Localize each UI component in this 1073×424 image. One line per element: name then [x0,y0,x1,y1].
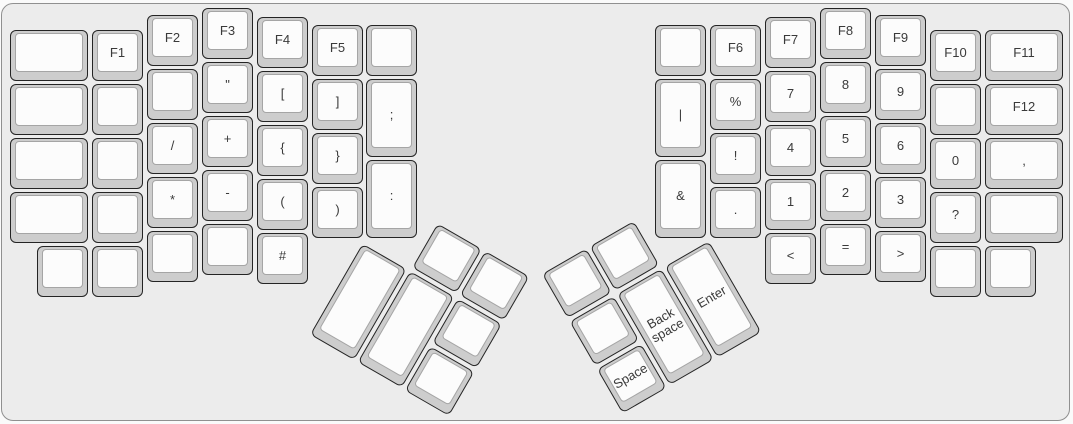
key-seven[interactable]: 7 [765,71,816,122]
keycap-label [97,141,138,180]
keycap-label [595,226,650,280]
keycap-label: F10 [935,33,976,72]
keycap-label: F2 [152,18,193,57]
keycap-label [97,87,138,126]
keycap-label [207,227,248,266]
keycap-label: < [770,236,811,275]
keycap-label [15,87,83,126]
keycap-label: | [660,82,701,148]
keycap-label: F8 [825,11,866,50]
keycap-label: 6 [880,126,921,165]
key-three[interactable]: 3 [875,177,926,228]
key-blank[interactable] [10,84,88,135]
key-right-brace[interactable]: } [312,133,363,184]
key-plus[interactable]: + [202,116,253,167]
keycap-label: = [825,227,866,266]
key-blank[interactable] [10,30,88,81]
key-f5[interactable]: F5 [312,25,363,76]
key-f8[interactable]: F8 [820,8,871,59]
keycap-label: 9 [880,72,921,111]
keycap-label [97,195,138,234]
keycap-label [935,249,976,288]
key-slash[interactable]: / [147,123,198,174]
keycap-label: F9 [880,18,921,57]
keycap-label: 1 [770,182,811,221]
key-four[interactable]: 4 [765,125,816,176]
key-left-bracket[interactable]: [ [257,71,308,122]
keycap-label: F4 [262,20,303,59]
key-blank[interactable] [92,138,143,189]
key-f1[interactable]: F1 [92,30,143,81]
keycap-label: ) [317,190,358,229]
keycap-label [660,28,701,67]
keycap-label: 8 [825,65,866,104]
keycap-label [97,249,138,288]
key-question[interactable]: ? [930,192,981,243]
key-blank[interactable] [930,246,981,297]
keycap-label: F6 [715,28,756,67]
keycap-label [152,234,193,273]
keycap-label: 7 [770,74,811,113]
key-f7[interactable]: F7 [765,17,816,68]
keycap-label [990,249,1031,288]
key-blank[interactable] [202,224,253,275]
key-f3[interactable]: F3 [202,8,253,59]
key-left-paren[interactable]: ( [257,179,308,230]
key-semicolon[interactable]: ; [366,79,417,157]
keycap-label [469,256,524,310]
keycap-label: + [207,119,248,158]
keycap-label: ? [935,195,976,234]
keycap-label [15,141,83,180]
key-greater-than[interactable]: > [875,231,926,282]
key-blank[interactable] [92,246,143,297]
key-blank[interactable] [147,231,198,282]
key-blank[interactable] [985,246,1036,297]
key-nine[interactable]: 9 [875,69,926,120]
keycap-label [15,33,83,72]
keycap-label: # [262,236,303,275]
key-blank[interactable] [92,84,143,135]
key-blank[interactable] [10,192,88,243]
keycap-label: 0 [935,141,976,180]
keycap-label: " [207,65,248,104]
key-six[interactable]: 6 [875,123,926,174]
key-equals[interactable]: = [820,224,871,275]
key-right-paren[interactable]: ) [312,187,363,238]
keycap-label: - [207,173,248,212]
keycap-label: } [317,136,358,175]
keycap-label [152,72,193,111]
key-left-brace[interactable]: { [257,125,308,176]
keycap-label [548,254,603,308]
keycap-label: ] [317,82,358,121]
key-ampersand[interactable]: & [655,160,706,238]
key-blank[interactable] [985,192,1063,243]
key-f6[interactable]: F6 [710,25,761,76]
keycap-label: > [880,234,921,273]
key-pipe[interactable]: | [655,79,706,157]
keycap-label: Space [603,349,658,403]
key-f12[interactable]: F12 [985,84,1063,135]
keycap-label: : [371,163,412,229]
keyboard-layout-canvas: F1F2/*F3"+-F4[{(#F5]});:|&F6%!.F7741<F88… [0,0,1073,424]
key-right-bracket[interactable]: ] [312,79,363,130]
keycap-label [935,87,976,126]
key-asterisk[interactable]: * [147,177,198,228]
keycap-label: F11 [990,33,1058,72]
key-f9[interactable]: F9 [875,15,926,66]
keycap-label: [ [262,74,303,113]
keycap-label: % [715,82,756,121]
keycap-label: { [262,128,303,167]
keycap-label [990,195,1058,234]
keycap-label: ( [262,182,303,221]
key-blank[interactable] [92,192,143,243]
keycap-label: F1 [97,33,138,72]
key-blank[interactable] [366,25,417,76]
keycap-label: * [152,180,193,219]
keycap-label: 5 [825,119,866,158]
keycap-label: / [152,126,193,165]
key-blank[interactable] [930,84,981,135]
keycap-label: 2 [825,173,866,212]
key-blank[interactable] [147,69,198,120]
key-five[interactable]: 5 [820,116,871,167]
key-f4[interactable]: F4 [257,17,308,68]
key-exclamation[interactable]: ! [710,133,761,184]
key-blank[interactable] [655,25,706,76]
key-comma[interactable]: , [985,138,1063,189]
keycap-label: F3 [207,11,248,50]
keycap-label [42,249,83,288]
keycap-label: 4 [770,128,811,167]
keycap-label: F12 [990,87,1058,126]
keycap-label [15,195,83,234]
key-minus[interactable]: - [202,170,253,221]
key-f10[interactable]: F10 [930,30,981,81]
key-percent[interactable]: % [710,79,761,130]
keycap-label: & [660,163,701,229]
keycap-label: F5 [317,28,358,67]
key-zero[interactable]: 0 [930,138,981,189]
key-hash[interactable]: # [257,233,308,284]
keycap-label: ! [715,136,756,175]
key-f2[interactable]: F2 [147,15,198,66]
keycap-label [421,229,476,283]
keyboard: F1F2/*F3"+-F4[{(#F5]});:|&F6%!.F7741<F88… [0,0,1073,424]
key-f11[interactable]: F11 [985,30,1063,81]
keycap-label: . [715,190,756,229]
key-less-than[interactable]: < [765,233,816,284]
key-two[interactable]: 2 [820,170,871,221]
key-double-quote[interactable]: " [202,62,253,113]
keycap-label [371,28,412,67]
key-colon[interactable]: : [366,160,417,238]
keycap-label: ; [371,82,412,148]
key-period[interactable]: . [710,187,761,238]
keycap-label: , [990,141,1058,180]
key-blank[interactable] [10,138,88,189]
keycap-label: 3 [880,180,921,219]
keycap-label: F7 [770,20,811,59]
key-blank[interactable] [37,246,88,297]
key-eight[interactable]: 8 [820,62,871,113]
keycap-label [575,301,630,355]
key-one[interactable]: 1 [765,179,816,230]
